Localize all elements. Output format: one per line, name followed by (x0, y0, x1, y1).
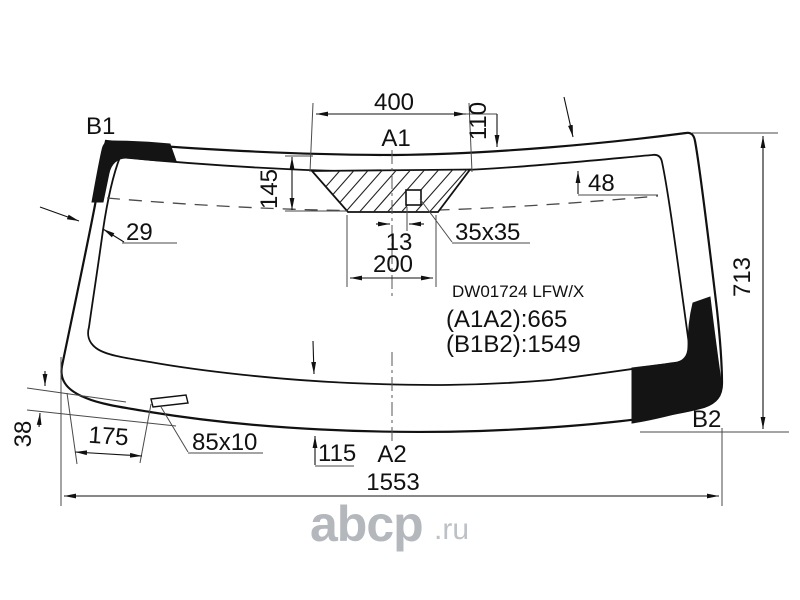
dim-label-713: 713 (729, 257, 756, 297)
watermark-brand: abcp (310, 496, 423, 552)
bottom-slot (151, 395, 188, 407)
dim-label-38: 38 (10, 421, 37, 448)
dim-label-110: 110 (465, 102, 492, 140)
dim-label-115: 115 (318, 440, 356, 467)
ext-38-upper (27, 388, 126, 402)
ext-175-right (140, 404, 151, 463)
point-label-b2: B2 (692, 406, 721, 433)
dim-29-inner-arrow (103, 229, 124, 242)
b1-corner-shade (92, 141, 176, 202)
glass-body (61, 133, 722, 443)
point-label-a2: A2 (377, 441, 406, 468)
leader-85x10 (161, 407, 188, 452)
dim-29-outer-arrow (40, 207, 79, 221)
point-label-b1: B1 (86, 113, 115, 140)
dim-label-35x35: 35x35 (455, 219, 520, 246)
dim-label-145: 145 (256, 169, 283, 209)
dim-label-400: 400 (374, 89, 414, 116)
dim-label-175: 175 (88, 422, 130, 452)
dim-label-48: 48 (588, 170, 615, 197)
dim-38-up-arrow (39, 413, 40, 427)
extension-lines (27, 103, 789, 506)
distance-b1b2: (B1B2):1549 (446, 331, 581, 358)
distance-a1a2: (A1A2):665 (446, 306, 567, 333)
windshield-diagram-canvas: 400 A1 110 48 145 29 13 35x35 200 DW0172… (0, 0, 800, 600)
b2-corner-shade (632, 297, 721, 423)
ext-400-left (310, 103, 313, 172)
sensor-square (406, 190, 421, 205)
point-label-a1: A1 (381, 125, 410, 152)
dim-label-29: 29 (126, 219, 153, 246)
watermark: abcp .ru (310, 496, 469, 552)
part-code: DW01724 LFW/X (452, 282, 584, 301)
dim-label-1553: 1553 (366, 469, 419, 496)
dim-label-85x10: 85x10 (192, 429, 257, 456)
dim-label-200: 200 (373, 251, 413, 278)
dim-115-down-arrow (313, 341, 314, 374)
dim-48-outer-arrow (564, 97, 573, 137)
dim-175 (75, 452, 142, 456)
ext-175-left (67, 393, 77, 464)
windshield-diagram: 400 A1 110 48 145 29 13 35x35 200 DW0172… (0, 0, 800, 600)
watermark-tld: .ru (434, 513, 469, 546)
